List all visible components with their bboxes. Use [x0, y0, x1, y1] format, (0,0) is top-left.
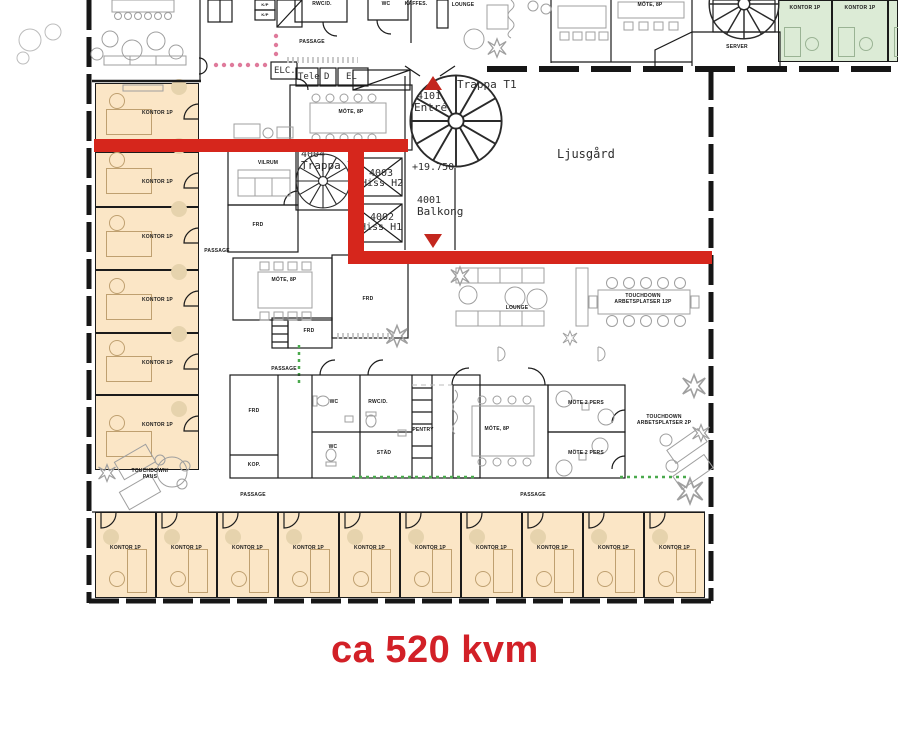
- label-balkong: Balkong: [417, 205, 463, 218]
- label-lounge: LOUNGE: [452, 2, 475, 8]
- label-stad: STÄD: [377, 450, 391, 456]
- label-rwc: RWC/D.: [368, 399, 387, 405]
- highlight-bar-vertical: [348, 139, 364, 264]
- label-kop: KOP.: [248, 462, 260, 468]
- room-label: KONTOR 1P: [142, 179, 173, 185]
- room-label: KONTOR 1P: [142, 297, 173, 303]
- office-room: KONTOR 1P: [583, 512, 644, 598]
- label-ljusgard: Ljusgård: [557, 147, 615, 161]
- label-mote8: MÖTE, 8P: [638, 2, 663, 8]
- label-touchdown-12p: ARBETSPLATSER 12P: [614, 299, 671, 305]
- office-room-green: [888, 0, 898, 62]
- office-room: KONTOR 1P: [339, 512, 400, 598]
- room-label: KONTOR 1P: [659, 545, 690, 551]
- label-hiss-h1: Hiss H1: [360, 222, 402, 233]
- office-room: KONTOR 1P: [156, 512, 217, 598]
- label-mote8: MÖTE, 8P: [272, 277, 297, 283]
- entrance-arrow-up-icon: [424, 76, 442, 90]
- label-kaffes: KAFFES.: [405, 1, 428, 7]
- label-wc: WC: [382, 1, 391, 7]
- label-d: D: [324, 72, 329, 82]
- label-tele: Tele: [298, 72, 320, 82]
- label-frd: FRD: [363, 296, 374, 302]
- room-label: KONTOR 1P: [537, 545, 568, 551]
- room-label: KONTOR 1P: [790, 5, 821, 11]
- label-el: EL: [346, 72, 357, 82]
- office-room: KONTOR 1P: [278, 512, 339, 598]
- floor-plan: KONTOR 1P KONTOR 1P KONTOR 1P KONTOR 1P …: [0, 0, 898, 733]
- label-frd: FRD: [304, 328, 315, 334]
- label-rwc: RWC/D.: [312, 1, 331, 7]
- label-trappa-t1: Trappa T1: [457, 78, 517, 91]
- office-room: KONTOR 1P: [400, 512, 461, 598]
- label-pentry: PENTRY: [412, 427, 433, 433]
- entrance-arrow-down-icon: [424, 234, 442, 248]
- room-label: KONTOR 1P: [354, 545, 385, 551]
- label-passage: PASSAGE: [204, 248, 229, 254]
- label-touchdown-paus: PAUS: [143, 474, 157, 480]
- highlight-bar-horizontal-lower: [348, 251, 712, 264]
- label-passage: PASSAGE: [520, 492, 545, 498]
- label-frd: FRD: [253, 222, 264, 228]
- label-passage: PASSAGE: [271, 366, 296, 372]
- area-annotation: ca 520 kvm: [331, 629, 539, 672]
- room-label: KONTOR 1P: [142, 422, 173, 428]
- room-label: KONTOR 1P: [110, 545, 141, 551]
- room-label: KONTOR 1P: [415, 545, 446, 551]
- label-kp: K/P: [261, 12, 268, 17]
- room-label: KONTOR 1P: [845, 5, 876, 11]
- room-label: KONTOR 1P: [598, 545, 629, 551]
- label-wc: WC: [329, 444, 338, 450]
- label-passage: PASSAGE: [299, 39, 324, 45]
- room-label: KONTOR 1P: [142, 360, 173, 366]
- office-room: KONTOR 1P: [461, 512, 522, 598]
- office-room: KONTOR 1P: [95, 512, 156, 598]
- room-label: KONTOR 1P: [171, 545, 202, 551]
- room-label: KONTOR 1P: [476, 545, 507, 551]
- label-server: SERVER: [726, 44, 748, 50]
- room-label: KONTOR 1P: [232, 545, 263, 551]
- office-room-green: KONTOR 1P: [832, 0, 888, 62]
- label-lounge: LOUNGE: [506, 305, 529, 311]
- label-mote2: MÖTE 2 PERS: [568, 450, 604, 456]
- label-kp: K/P: [261, 2, 268, 7]
- label-mote8: MÖTE, 8P: [339, 109, 364, 115]
- office-room: KONTOR 1P: [95, 270, 199, 333]
- office-room: KONTOR 1P: [217, 512, 278, 598]
- office-room: KONTOR 1P: [95, 152, 199, 207]
- label-mote2: MÖTE 2 PERS: [568, 400, 604, 406]
- label-mote8: MÖTE, 8P: [485, 426, 510, 432]
- label-hiss-h2: Hiss H2: [361, 178, 403, 189]
- room-label: KONTOR 1P: [293, 545, 324, 551]
- office-room: KONTOR 1P: [95, 395, 199, 470]
- room-label: KONTOR 1P: [142, 234, 173, 240]
- office-room: KONTOR 1P: [95, 207, 199, 270]
- office-room: KONTOR 1P: [95, 333, 199, 395]
- room-label: KONTOR 1P: [142, 110, 173, 116]
- office-room-green: KONTOR 1P: [778, 0, 832, 62]
- label-vilrum: VILRUM: [258, 160, 278, 166]
- label-elc: ELC.: [274, 66, 296, 76]
- label-entre: Entré: [414, 101, 447, 114]
- label-level: +19.750: [412, 162, 454, 173]
- office-room: KONTOR 1P: [522, 512, 583, 598]
- label-wc: WC: [330, 399, 339, 405]
- label-passage: PASSAGE: [240, 492, 265, 498]
- label-frd: FRD: [249, 408, 260, 414]
- office-room: KONTOR 1P: [644, 512, 705, 598]
- label-touchdown-2p: ARBETSPLATSER 2P: [637, 420, 691, 426]
